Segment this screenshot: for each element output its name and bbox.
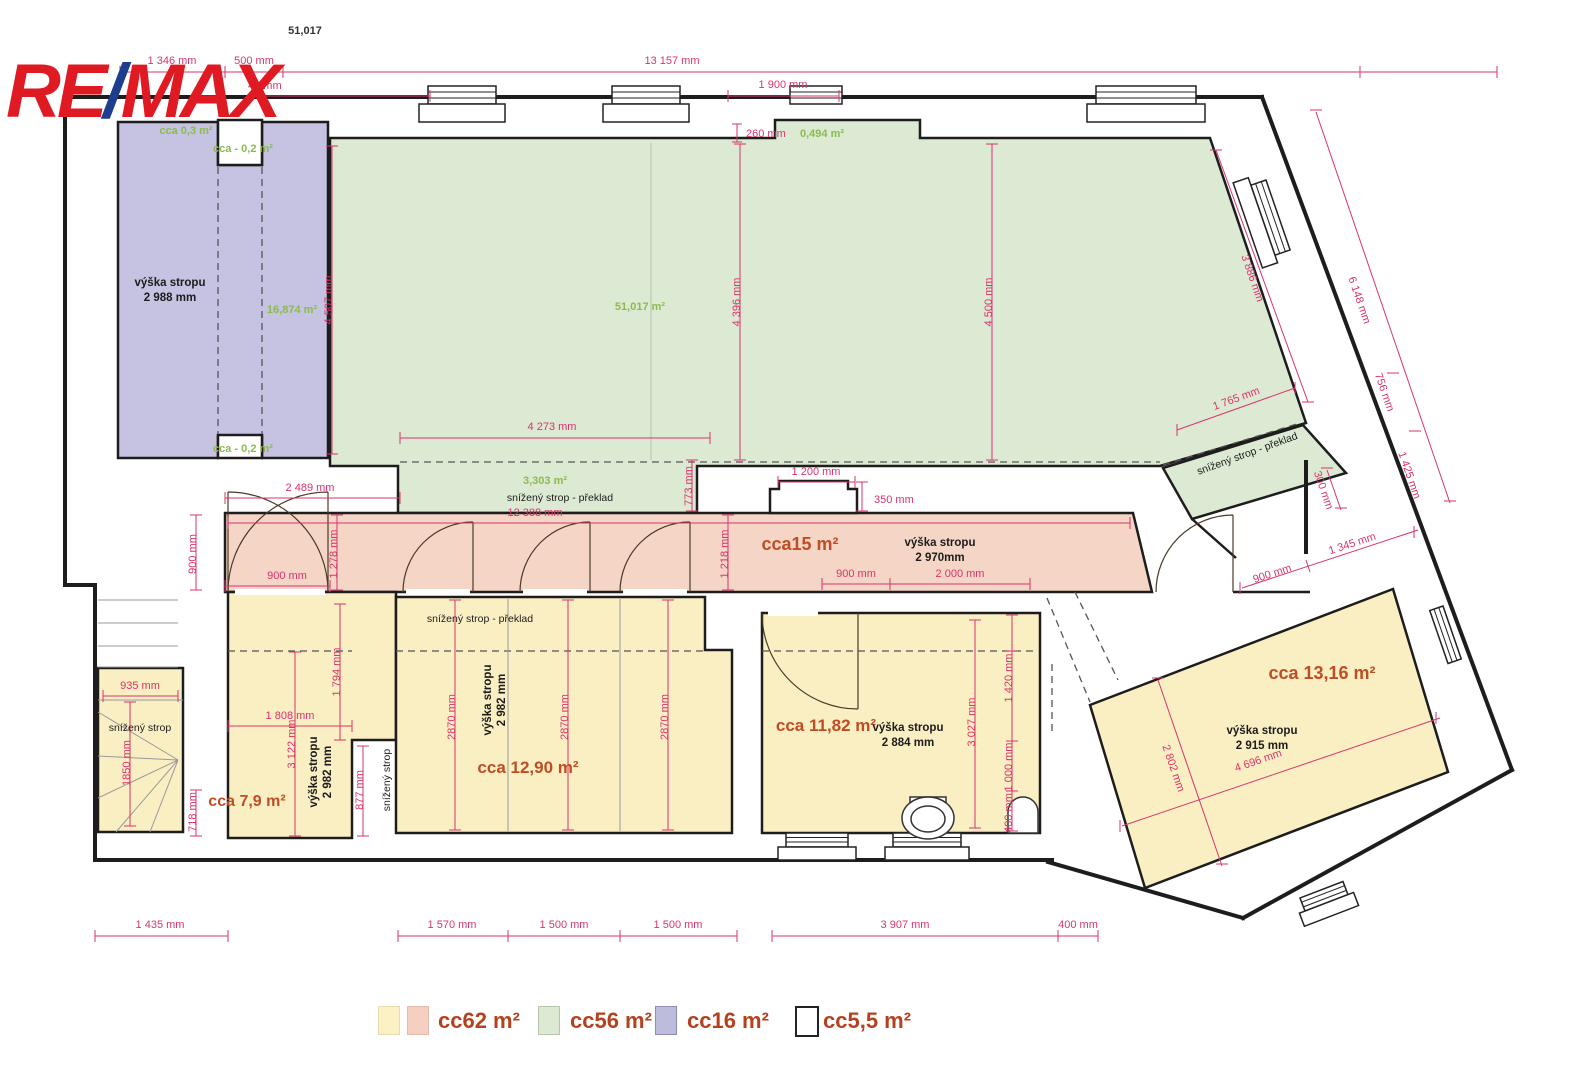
- area-label: 51,017 m²: [615, 301, 665, 313]
- dim-label: 3 907 mm: [881, 919, 930, 931]
- dim-label: 4 273 mm: [528, 421, 577, 433]
- dim-label: 2 489 mm: [286, 482, 335, 494]
- area-label: cca 7,9 m²: [208, 793, 285, 810]
- note-label: snížený strop - překlad: [507, 492, 613, 504]
- logo-slash: /: [104, 49, 121, 134]
- dim-label: 13 157 mm: [644, 55, 699, 67]
- note-label: snížený strop - překlad: [427, 613, 533, 625]
- dim-label: 1 900 mm: [759, 79, 808, 91]
- logo-re: RE: [6, 49, 104, 134]
- height-label: výška stropu: [1227, 725, 1298, 737]
- window-icon: [778, 833, 856, 860]
- dim-label: 2 000 mm: [936, 568, 985, 580]
- room-rotated: [1090, 589, 1448, 888]
- dim-label: 6 148 mm: [1345, 275, 1372, 325]
- height-label: výška stropu: [482, 665, 494, 736]
- height-label: 2 982 mm: [322, 746, 334, 798]
- note-label: snížený strop: [109, 722, 172, 734]
- dim-label: 4 500 mm: [983, 278, 995, 327]
- dim-label: 1 278 mm: [328, 530, 340, 579]
- dim-label: 4 507 mm: [323, 276, 335, 325]
- floor-plan-drawing: 51,017 1 346 mm 500 mm 13 157 mm 44 mm 1…: [0, 0, 1588, 1080]
- dim-label: 400 mm: [1058, 919, 1098, 931]
- height-label: 2 884 mm: [882, 737, 934, 749]
- dim-label: 718 mm: [187, 792, 199, 832]
- dim-label: 1 500 mm: [540, 919, 589, 931]
- legend-label: cc56 m²: [570, 1008, 652, 1034]
- height-label: 2 988 mm: [144, 292, 196, 304]
- dim-label: 1 794 mm: [331, 648, 343, 697]
- area-label: cca15 m²: [761, 534, 838, 554]
- area-label: cca 13,16 m²: [1268, 663, 1375, 683]
- legend-label: cc16 m²: [687, 1008, 769, 1034]
- dim-label: 900 mm: [836, 568, 876, 580]
- window-icon: [1087, 86, 1205, 122]
- dim-label: 400 mm: [1003, 793, 1015, 833]
- dim-label: 1850 mm: [121, 740, 133, 786]
- logo-max: MAX: [121, 49, 278, 134]
- room-regions: [98, 120, 1448, 888]
- dim-label: 3 027 mm: [966, 698, 978, 747]
- dim-label: 2870 mm: [559, 694, 571, 740]
- corridor: [225, 513, 1152, 592]
- dim-label: 1 570 mm: [428, 919, 477, 931]
- legend-swatch-white: [795, 1006, 819, 1037]
- floor-plan-page: 51,017 1 346 mm 500 mm 13 157 mm 44 mm 1…: [0, 0, 1588, 1080]
- dim-label: 350 mm: [874, 494, 914, 506]
- legend-swatch-yellow: [378, 1006, 400, 1035]
- dim-label: 773 mm: [683, 466, 695, 506]
- toilet-bowl: [911, 806, 945, 832]
- height-label: výška stropu: [905, 537, 976, 549]
- area-label: 16,874 m²: [267, 304, 317, 316]
- dim-label: 1 420 mm: [1003, 654, 1015, 703]
- area-label: cca 12,90 m²: [477, 758, 578, 777]
- corridor-niche: [770, 481, 857, 513]
- area-label: 3,303 m²: [523, 475, 567, 487]
- dim-label: 877 mm: [354, 770, 366, 810]
- area-label: cca - 0,2 m²: [213, 143, 273, 155]
- room-green-main: [330, 120, 1306, 513]
- dim-label: 900 mm: [267, 570, 307, 582]
- dim-label: 260 mm: [746, 128, 786, 140]
- dim-label: 900 mm: [1252, 562, 1294, 586]
- dim-label: 900 mm: [187, 534, 199, 574]
- window-icon: [1430, 606, 1461, 664]
- height-label: výška stropu: [135, 277, 206, 289]
- legend-label: cc5,5 m²: [823, 1008, 911, 1034]
- window-icon: [419, 86, 505, 122]
- height-label: výška stropu: [308, 737, 320, 808]
- dim-label: 2870 mm: [446, 694, 458, 740]
- area-label: cca 11,82 m²: [776, 716, 877, 735]
- dim-label: 1 435 mm: [136, 919, 185, 931]
- dim-label: 2870 mm: [659, 694, 671, 740]
- legend-swatch-green: [538, 1006, 560, 1035]
- dim-label: 1 218 mm: [719, 530, 731, 579]
- legend-label: cc62 m²: [438, 1008, 520, 1034]
- height-label: 2 970mm: [915, 552, 964, 564]
- legend: cc62 m² cc56 m² cc16 m² cc5,5 m²: [0, 998, 1588, 1058]
- dim-label: 4 396 mm: [731, 278, 743, 327]
- dim-label: 3 122 mm: [286, 720, 298, 769]
- stairs-upper: [98, 600, 178, 667]
- stair-block: [98, 668, 183, 832]
- dim-label: 1 345 mm: [1327, 531, 1377, 558]
- dim-label: 1 200 mm: [792, 466, 841, 478]
- area-label: 0,494 m²: [800, 128, 844, 140]
- legend-swatch-pink: [407, 1006, 429, 1035]
- dim-label: 1 000 mm: [1003, 743, 1015, 792]
- dim-label: 1 500 mm: [654, 919, 703, 931]
- note-label: snížený strop: [381, 749, 393, 812]
- room-blue: [118, 122, 328, 458]
- height-label: výška stropu: [873, 722, 944, 734]
- remax-logo: RE/MAX: [6, 54, 278, 130]
- dim-label: 1 425 mm: [1395, 450, 1422, 500]
- dim-label: 935 mm: [120, 680, 160, 692]
- window-icon: [603, 86, 689, 122]
- height-label: 2 982 mm: [496, 674, 508, 726]
- legend-swatch-blue: [655, 1006, 677, 1035]
- area-label: cca - 0,2 m²: [213, 443, 273, 455]
- plan-number: 51,017: [288, 25, 322, 37]
- door-arc: [1156, 515, 1233, 592]
- dim-label: 12 388 mm: [507, 507, 562, 519]
